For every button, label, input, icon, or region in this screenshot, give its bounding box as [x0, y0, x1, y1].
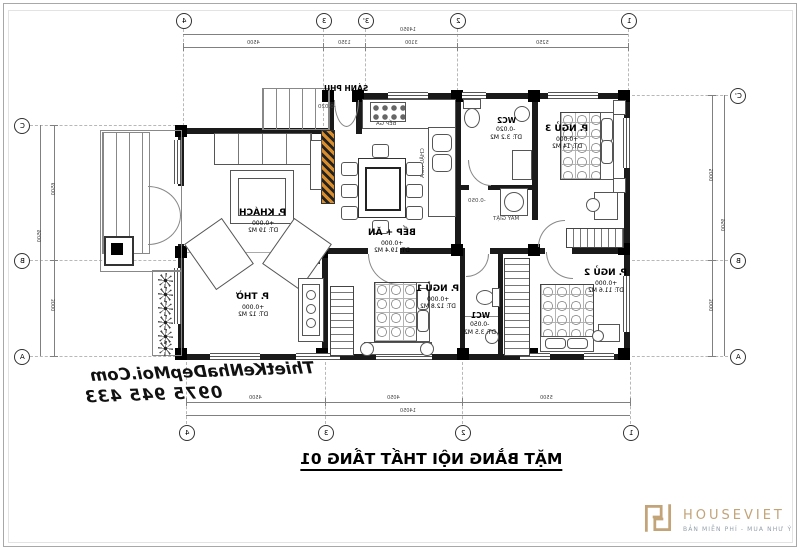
plant-icon — [158, 287, 173, 302]
grid-label: 1 — [629, 426, 633, 440]
stove — [370, 102, 406, 122]
window — [210, 353, 260, 360]
room-name: SẢNH PHỤ — [324, 84, 368, 94]
dim-line-top-segments — [183, 47, 628, 48]
altar-item — [306, 304, 316, 314]
dining-chair — [372, 144, 389, 158]
dim-text: 3100 — [391, 40, 431, 46]
drawing-title: MẶT BẰNG NỘI THẤT TẦNG 01 — [300, 449, 530, 471]
dining-chair — [341, 184, 358, 198]
grid-marker-bottom-1: 1 — [623, 425, 639, 441]
grid-marker-bottom-3: 3 — [318, 425, 334, 441]
stove-label: BẾP GA — [364, 121, 408, 127]
room-level: -0.020 — [496, 126, 515, 134]
dim-line-top-total — [183, 34, 628, 35]
plant-icon — [158, 301, 173, 316]
plant-icon — [158, 273, 173, 288]
toilet-tank — [492, 288, 500, 307]
room-name: P. KHÁCH — [239, 208, 286, 220]
pillow — [417, 310, 429, 332]
grid-marker-left-b: B — [14, 253, 30, 269]
room-label-tho: P. THỜ +0.000 DT: 12 M2 — [222, 292, 284, 319]
room-label-wc2: WC2 -0.020 DT: 3.2 M2 — [484, 116, 528, 141]
room-name: P. THỜ — [236, 292, 269, 304]
column — [451, 244, 463, 256]
grid-line — [628, 29, 629, 91]
dim-tick — [183, 43, 184, 51]
dim-tick — [708, 260, 716, 261]
plant-icon — [158, 341, 173, 356]
washing-machine-label: MÁY GIẶT — [484, 216, 528, 222]
dim-text: 5500 — [526, 395, 566, 401]
sink-basin — [432, 134, 452, 152]
logo-name: HOUSEVIET — [683, 508, 792, 523]
room-level: +0.000 — [427, 296, 449, 304]
window — [623, 118, 630, 168]
toilet-bowl — [464, 108, 480, 128]
wall-hall-d — [572, 248, 624, 254]
grid-marker-right-c: C' — [730, 88, 746, 104]
grid-marker-top-3: 3 — [316, 13, 332, 29]
tv-cabinet — [310, 140, 322, 190]
room-level: +0.000 — [381, 240, 403, 248]
grid-marker-top-2: 2 — [450, 13, 466, 29]
bench-lamp — [360, 342, 374, 356]
dim-line-bottom-total — [186, 415, 630, 416]
grid-line — [457, 29, 458, 91]
logo-tagline: BẢN MIỄN PHÍ - MUA NHƯ Ý — [683, 526, 792, 533]
window — [388, 92, 428, 99]
sanh-phu-level: -0.020 — [312, 104, 342, 110]
sofa — [214, 133, 312, 165]
dim-text: 9500 — [721, 210, 727, 240]
shower-tray — [512, 150, 532, 180]
dim-tick — [630, 398, 631, 406]
dining-chair — [341, 206, 358, 220]
column — [457, 348, 469, 360]
room-label-wc1: WC1 -0.050 DT: 3.5 M2 — [462, 311, 498, 336]
room-area: DT: 14 M2 — [552, 143, 582, 151]
dim-text: 14050 — [388, 408, 428, 414]
grid-marker-right-a: A — [730, 349, 746, 365]
desk-chair — [592, 330, 604, 342]
grid-label: 3' — [363, 14, 369, 28]
room-label-ngu2: P. NGỦ 2 +0.000 DT: 11.6 M2 — [580, 268, 632, 295]
grid-label: 2 — [461, 426, 465, 440]
dim-tick — [50, 260, 58, 261]
hatch-strip-vertical — [321, 130, 335, 204]
room-label-sanh-phu: SẢNH PHỤ — [322, 84, 370, 94]
laundry-level: -0.050 — [462, 198, 492, 204]
grid-label: B — [20, 254, 25, 268]
dim-tick — [462, 398, 463, 406]
dim-line-left-segments — [54, 125, 55, 356]
nightstand — [613, 100, 626, 115]
room-label-khach: P. KHÁCH +0.000 DT: 19 M2 — [228, 208, 298, 235]
room-name: P. NGỦ 2 — [584, 268, 627, 280]
room-level: -0.050 — [470, 321, 489, 329]
grid-marker-right-b: B — [730, 253, 746, 269]
grid-label: 2 — [456, 14, 460, 28]
porch-column — [111, 243, 123, 255]
grid-label: 4 — [182, 14, 186, 28]
room-level: +0.000 — [556, 136, 578, 144]
pillow — [601, 118, 613, 142]
dim-text: 4050 — [373, 395, 413, 401]
grid-marker-top-3p: 3' — [358, 13, 374, 29]
room-name: WC1 — [471, 311, 490, 321]
dining-chair — [406, 184, 423, 198]
room-name: WC2 — [497, 116, 516, 126]
houseviet-logo: HOUSEVIET BẢN MIỄN PHÍ - MUA NHƯ Ý — [640, 494, 795, 546]
column — [618, 348, 630, 360]
dim-tick — [325, 398, 326, 406]
room-area: DT: 19.4 M2 — [374, 247, 410, 255]
room-area: DT: 19 M2 — [248, 227, 278, 235]
window — [548, 92, 598, 99]
room-area: DT: 3.2 M2 — [490, 134, 522, 142]
dim-text: 3000 — [709, 290, 715, 320]
pillow — [567, 338, 588, 349]
bench-lamp — [420, 342, 434, 356]
dim-text: 1350 — [324, 40, 364, 46]
pillow — [601, 140, 613, 164]
grid-label: C' — [735, 89, 742, 103]
room-name: BẾP + ĂN — [368, 228, 416, 240]
grid-label: 3 — [322, 14, 326, 28]
grid-label: C — [20, 119, 25, 133]
altar-item — [306, 290, 316, 300]
grid-line — [365, 29, 366, 91]
room-label-bep-an: BẾP + ĂN +0.000 DT: 19.4 M2 — [366, 228, 418, 255]
desk-chair — [586, 198, 600, 212]
dining-chair — [406, 162, 423, 176]
wall-wc2-ngu3 — [532, 93, 538, 220]
dim-text: 4500 — [233, 40, 273, 46]
dining-chair — [406, 206, 423, 220]
room-name: P. NGỦ 1 — [416, 284, 459, 296]
room-level: +0.000 — [242, 304, 264, 312]
room-level: +0.000 — [595, 280, 617, 288]
houseviet-logo-icon — [640, 500, 676, 540]
wardrobe — [330, 286, 354, 356]
grid-label: A — [20, 350, 25, 364]
room-label-ngu1: P. NGỦ 1 +0.000 DT: 12.8 M2 — [412, 284, 464, 311]
dim-text: 4500 — [235, 395, 275, 401]
grid-marker-top-4: 4 — [176, 13, 192, 29]
room-area: DT: 11.6 M2 — [588, 287, 624, 295]
room-level: +0.000 — [252, 220, 274, 228]
column — [528, 90, 540, 102]
dim-line-bottom-segments — [186, 402, 630, 403]
grid-label: 4 — [185, 426, 189, 440]
dim-tick — [365, 43, 366, 51]
dim-text: 3000 — [51, 290, 57, 320]
window — [584, 353, 614, 360]
dim-tick — [50, 125, 58, 126]
grid-label: 1 — [627, 14, 631, 28]
grid-marker-bottom-4: 4 — [179, 425, 195, 441]
dim-text: 9500 — [37, 221, 43, 251]
grid-marker-left-c: C — [14, 118, 30, 134]
grid-line — [630, 362, 631, 424]
dim-tick — [708, 95, 716, 96]
room-area: DT: 12 M2 — [238, 311, 268, 319]
dim-text: 5250 — [522, 40, 562, 46]
grid-marker-left-a: A — [14, 349, 30, 365]
grid-label: 3 — [324, 426, 328, 440]
dim-tick — [457, 43, 458, 51]
dining-chair — [341, 162, 358, 176]
plant-icon — [158, 315, 173, 330]
dim-tick — [50, 356, 58, 357]
room-label-ngu3: P. NGỦ 3 +0.000 DT: 14 M2 — [538, 124, 596, 151]
sink-basin — [432, 154, 452, 172]
wardrobe — [504, 258, 530, 356]
pillow — [545, 338, 566, 349]
room-name: P. NGỦ 3 — [545, 124, 588, 136]
wall-wc2-bottom-a — [461, 185, 469, 190]
room-area: DT: 12.8 M2 — [420, 303, 456, 311]
dim-text: 5000 — [709, 160, 715, 190]
dining-table-top — [365, 167, 401, 211]
dim-tick — [628, 43, 629, 51]
grid-marker-bottom-2: 2 — [455, 425, 471, 441]
window — [462, 92, 486, 99]
grid-marker-top-1: 1 — [621, 13, 637, 29]
wardrobe — [566, 228, 624, 248]
dim-text: 14950 — [388, 27, 428, 33]
room-area: DT: 3.5 M2 — [464, 329, 496, 337]
washing-machine-drum — [504, 192, 524, 212]
houseviet-logo-text: HOUSEVIET BẢN MIỄN PHÍ - MUA NHƯ Ý — [683, 508, 792, 533]
altar-item — [306, 318, 316, 328]
grid-label: B — [736, 254, 741, 268]
dim-text: 6500 — [51, 174, 57, 204]
grid-label: A — [736, 350, 741, 364]
nightstand — [613, 178, 626, 193]
dim-tick — [708, 356, 716, 357]
